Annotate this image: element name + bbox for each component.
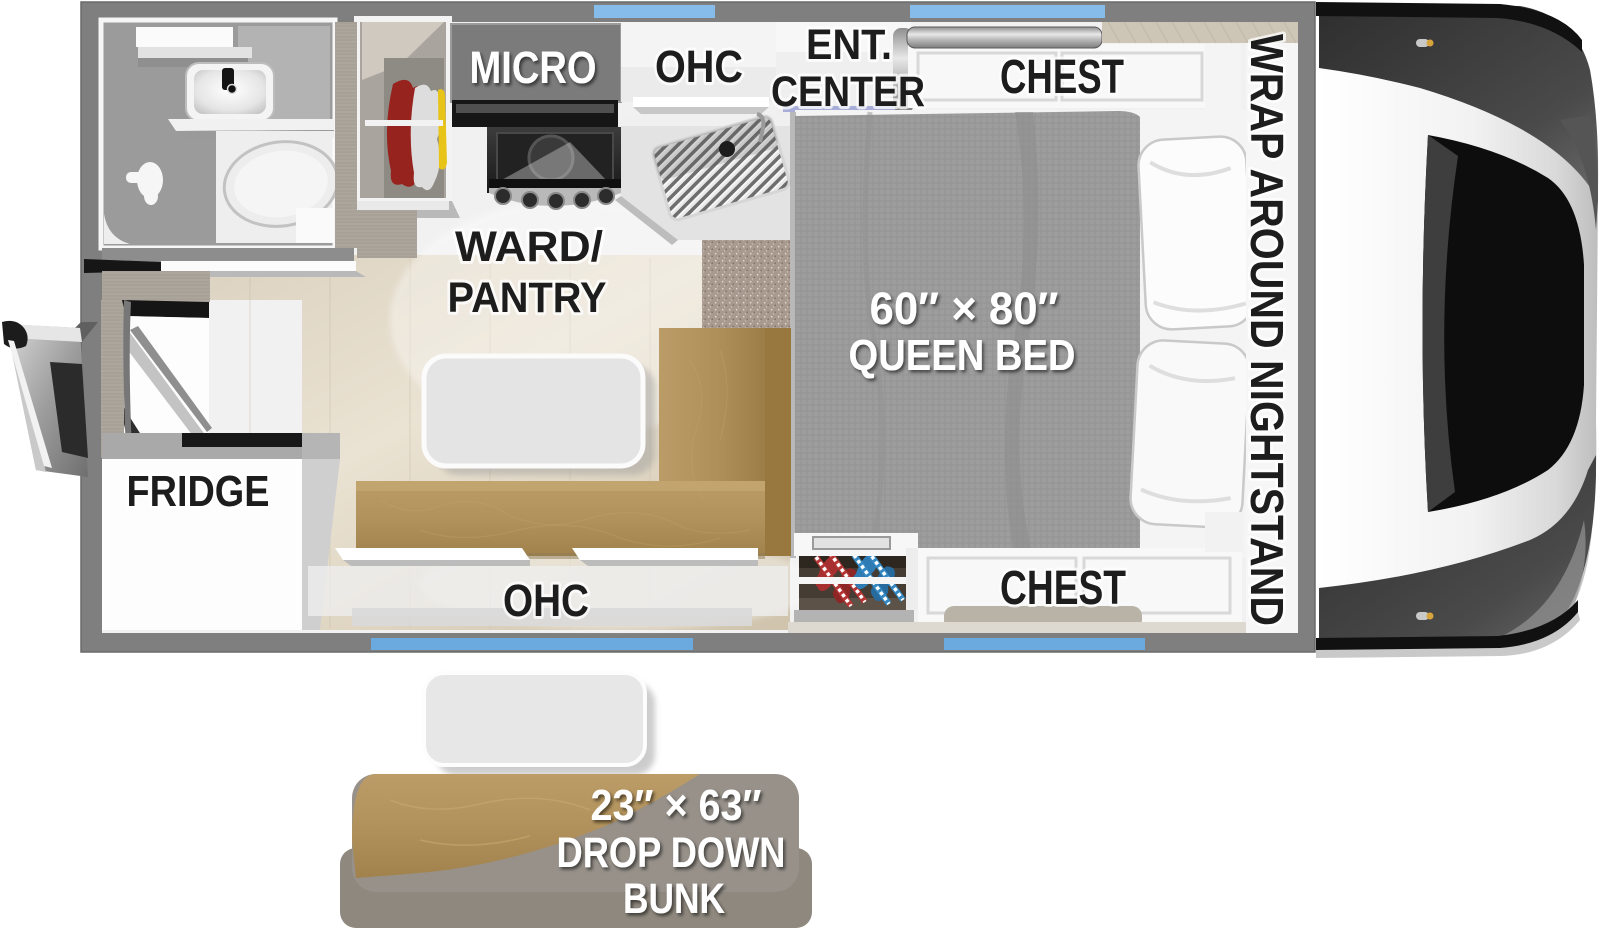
svg-text:BUNK: BUNK <box>623 875 725 923</box>
svg-text:QUEEN BED: QUEEN BED <box>849 331 1076 380</box>
svg-text:60″ × 80″: 60″ × 80″ <box>870 283 1059 334</box>
svg-text:OHC: OHC <box>503 575 589 626</box>
svg-text:WRAP AROUND NIGHTSTAND: WRAP AROUND NIGHTSTAND <box>1241 34 1293 626</box>
svg-text:23″ × 63″: 23″ × 63″ <box>591 781 762 830</box>
svg-text:CENTER: CENTER <box>771 68 925 116</box>
svg-text:DROP DOWN: DROP DOWN <box>557 829 786 877</box>
svg-text:PANTRY: PANTRY <box>448 274 607 322</box>
svg-text:MICRO: MICRO <box>470 42 597 93</box>
svg-text:WARD/: WARD/ <box>455 223 603 271</box>
svg-text:FRIDGE: FRIDGE <box>127 467 270 516</box>
svg-text:CHEST: CHEST <box>1000 562 1126 615</box>
svg-text:CHEST: CHEST <box>1000 51 1124 104</box>
svg-text:ENT.: ENT. <box>806 21 892 69</box>
svg-text:OHC: OHC <box>655 41 743 92</box>
